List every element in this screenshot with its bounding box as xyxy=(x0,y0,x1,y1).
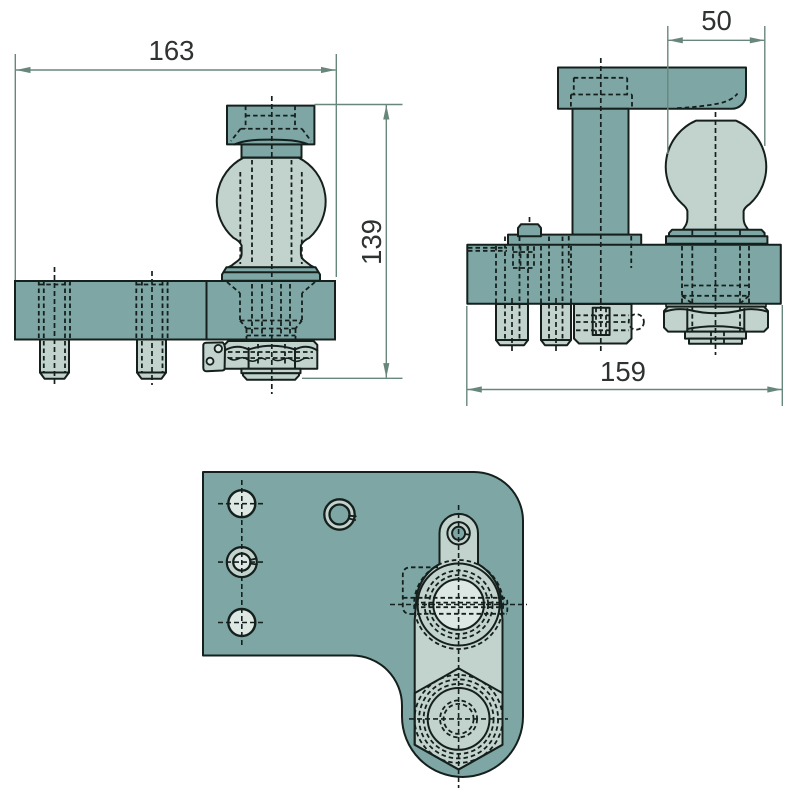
svg-text:163: 163 xyxy=(149,35,195,66)
svg-text:139: 139 xyxy=(356,219,387,265)
svg-text:50: 50 xyxy=(701,5,732,36)
svg-text:159: 159 xyxy=(600,356,646,387)
